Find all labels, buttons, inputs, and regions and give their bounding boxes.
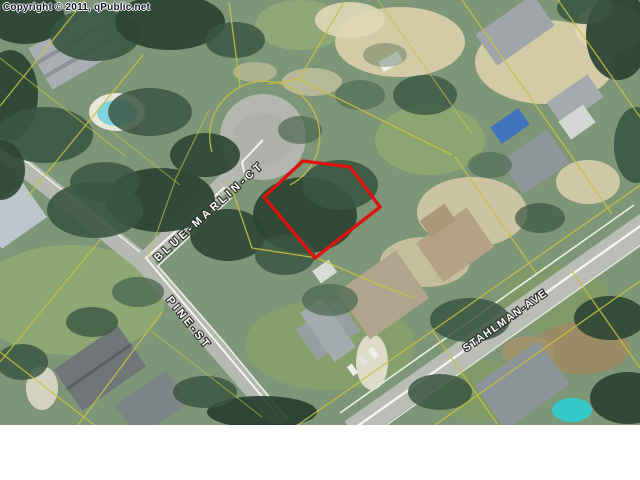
aerial-map[interactable]: BLUE-MARLIN-CT PINE-ST STAHLMAN-AVE bbox=[0, 0, 640, 425]
copyright-text: Copyright © 2011, qPublic.net bbox=[3, 2, 150, 13]
swimming-pool bbox=[552, 398, 592, 422]
map-viewport: BLUE-MARLIN-CT PINE-ST STAHLMAN-AVE Copy… bbox=[0, 0, 640, 480]
